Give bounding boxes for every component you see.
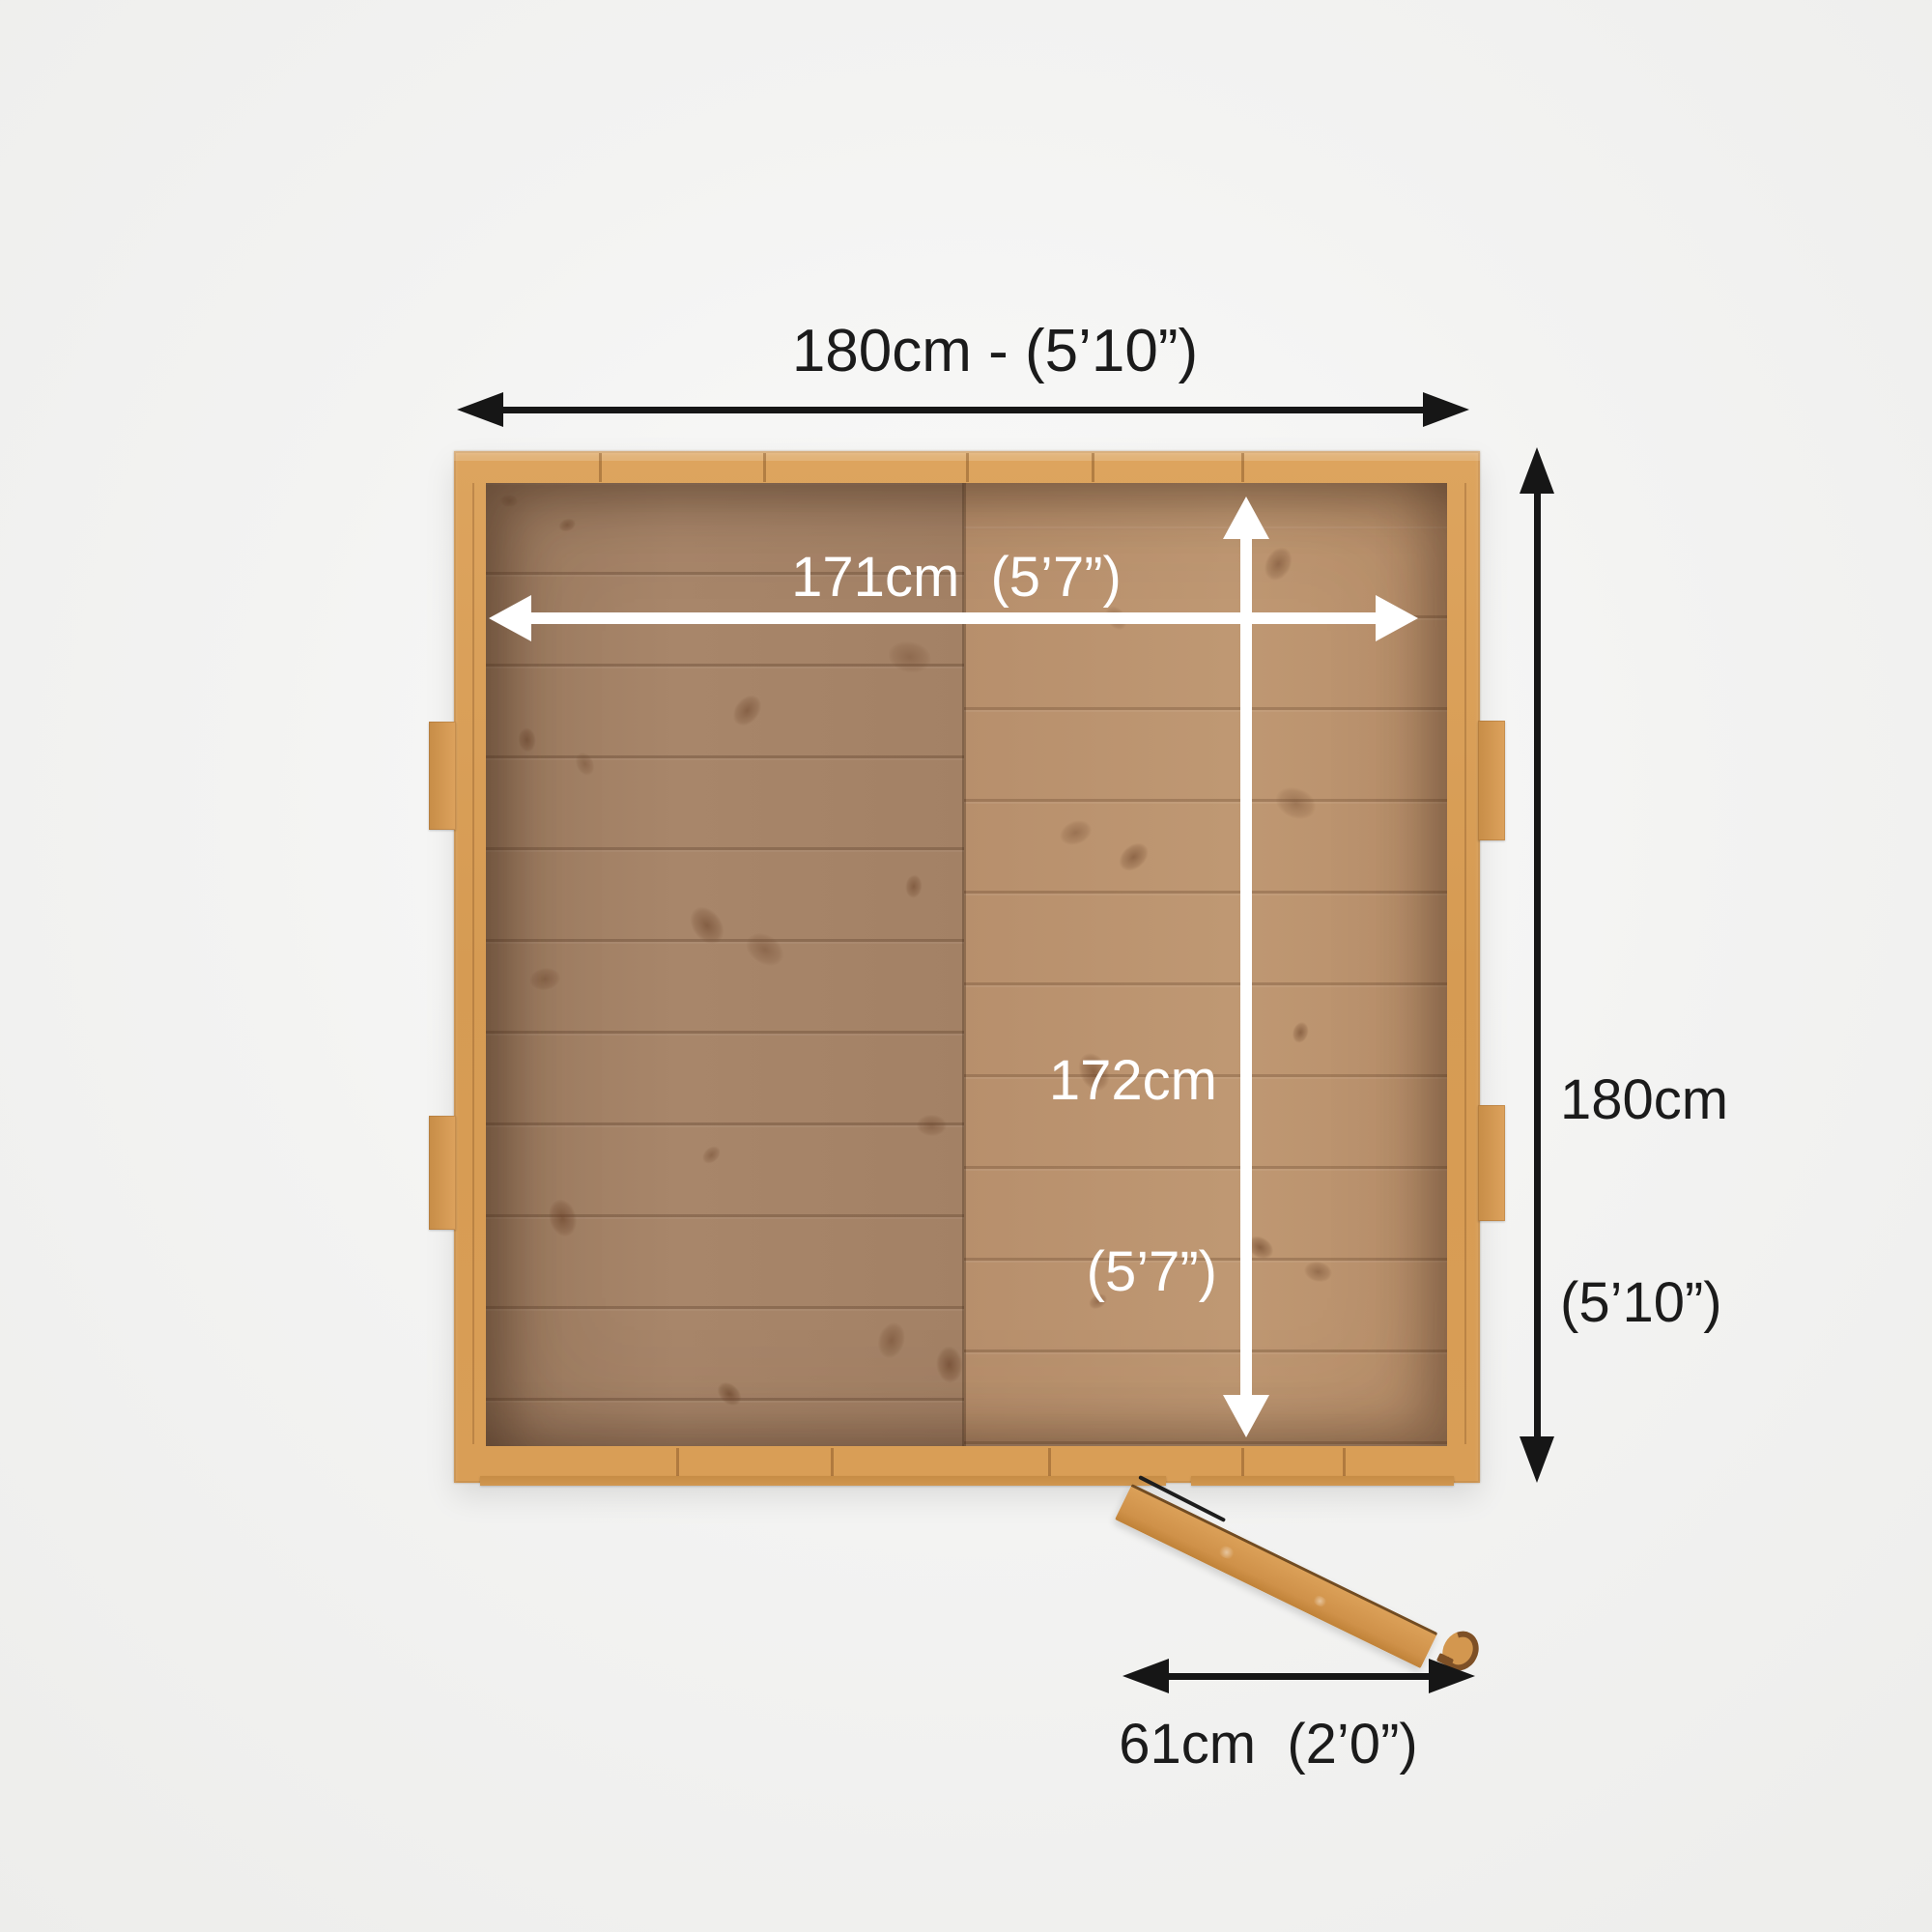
- left-wall-seam: [472, 483, 474, 1444]
- arrow-left-icon: [1122, 1659, 1169, 1693]
- bottom-wall-lip: [480, 1476, 1166, 1486]
- arrow-up-icon: [1223, 497, 1269, 539]
- inner-depth-label: 172cm (5’7”): [927, 922, 1217, 1432]
- arrow-left-icon: [457, 392, 503, 427]
- arrow-up-icon: [1520, 447, 1554, 494]
- arrow-line: [1159, 1673, 1439, 1680]
- outer-depth-label-ft: (5’10”): [1560, 1269, 1728, 1337]
- wall-tab-left-lower: [429, 1116, 456, 1230]
- bottom-wall-lip: [1191, 1476, 1454, 1486]
- arrow-left-icon: [489, 595, 531, 641]
- arrow-right-icon: [1423, 392, 1469, 427]
- wall-tab-left-upper: [429, 722, 456, 830]
- outer-depth-label-cm: 180cm: [1560, 1066, 1728, 1134]
- top-wall-seam: [1092, 453, 1094, 482]
- outer-depth-label: 180cm (5’10”): [1560, 931, 1728, 1472]
- door-grain-spot: [1311, 1594, 1329, 1609]
- arrow-down-icon: [1223, 1395, 1269, 1437]
- arrow-right-icon: [1429, 1659, 1475, 1693]
- shed-door-open: [1115, 1484, 1437, 1668]
- top-wall-seam: [763, 453, 766, 482]
- shed-dimension-diagram: 180cm - (5’10”) 180cm (5’10”) 171cm (5’7…: [0, 0, 1932, 1932]
- arrow-line: [1534, 488, 1541, 1444]
- arrow-line: [496, 407, 1437, 413]
- door-grain-spot: [1216, 1544, 1236, 1562]
- outer-width-label: 180cm - (5’10”): [609, 317, 1381, 385]
- top-wall-seam: [1241, 453, 1244, 482]
- right-wall-seam: [1464, 483, 1466, 1444]
- door-width-label: 61cm (2’0”): [1027, 1712, 1510, 1776]
- wall-tab-right-lower: [1478, 1105, 1505, 1221]
- arrow-down-icon: [1520, 1436, 1554, 1483]
- inner-depth-label-ft: (5’7”): [927, 1240, 1217, 1304]
- inner-width-label: 171cm (5’7”): [667, 545, 1246, 610]
- wall-tab-right-upper: [1478, 721, 1505, 840]
- arrow-right-icon: [1376, 595, 1418, 641]
- top-wall-seam: [966, 453, 969, 482]
- arrow-line: [1240, 537, 1252, 1397]
- top-wall-seam: [599, 453, 602, 482]
- inner-depth-label-cm: 172cm: [927, 1049, 1217, 1113]
